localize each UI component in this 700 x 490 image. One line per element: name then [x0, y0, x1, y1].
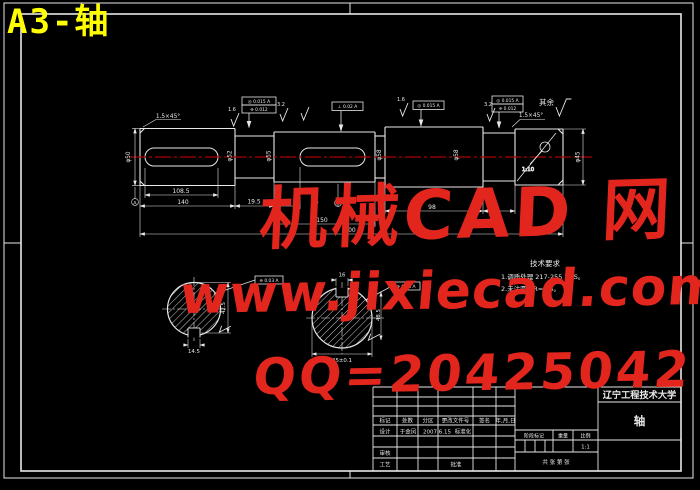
tb-stage-label: 阶段标记	[524, 433, 544, 440]
tb-header-docno: 更改文件号	[442, 417, 470, 425]
datum-a-label: A	[133, 200, 137, 206]
dim-dia1: φ50	[126, 151, 132, 163]
roughness-value-3: 1.6	[397, 97, 405, 103]
dim-key1-length: 108.5	[172, 188, 189, 195]
tb-designer-name: 于金凤	[400, 428, 417, 436]
dim-sec1-length: 140	[177, 199, 189, 206]
tb-header-sign: 签名	[479, 417, 490, 425]
fcf3-row: ◎ 0.015 A	[417, 103, 439, 109]
tb-header-date: 年,月,日	[496, 417, 516, 425]
roughness-value-2: 3.2	[277, 102, 285, 108]
chamfer-leaders	[143, 120, 545, 128]
fcf2-row: ⊥ 0.02 A	[338, 104, 357, 110]
watermark-url: www.jixiecad.com	[178, 257, 700, 327]
roughness-rest-label: 其余	[539, 97, 554, 107]
tb-design-label: 设计	[379, 428, 391, 436]
fcf4-row2: ⌯ 0.012	[499, 106, 517, 112]
tb-standard-label: 标准化	[455, 428, 472, 436]
dim-dia2: φ52	[228, 150, 234, 162]
dim-secA-width: 14.5	[188, 349, 200, 355]
watermark-brand: 机械CAD 网	[258, 153, 677, 263]
tb-process-label: 工艺	[379, 462, 391, 469]
watermark-qq: QQ=20425042	[251, 340, 694, 406]
fcf1-row2: ⌯ 0.012	[250, 107, 268, 113]
tb-header-zone: 分区	[422, 417, 434, 425]
tb-check-label: 审核	[379, 449, 391, 457]
fcf4-row1: ◎ 0.015 A	[496, 98, 518, 104]
tb-approve-label: 批准	[450, 461, 462, 469]
drawing-file-label: A3-轴	[7, 4, 110, 41]
cad-viewport: A3-轴	[0, 0, 700, 490]
dim-neck-length: 19.5	[247, 199, 261, 206]
fcf1-row1: ◎ 0.015 A	[248, 99, 270, 105]
roughness-value-1: 1.6	[228, 107, 236, 113]
tb-weight-label: 重量	[558, 433, 568, 440]
tb-header-count: 处数	[402, 417, 414, 425]
tb-scale-label: 比例	[580, 433, 590, 440]
tb-header-mark: 标记	[379, 417, 391, 425]
tb-sheet-count: 共 张 第 张	[542, 458, 570, 466]
tb-design-date: 2007.6.15	[423, 430, 451, 436]
dim-dia3: φ55	[267, 150, 273, 162]
roughness-value-4: 3.2	[484, 102, 492, 108]
dim-chamfer-left: 1.5×45°	[156, 114, 180, 120]
tb-scale-value: 1:1	[581, 445, 590, 451]
dim-chamfer-right: 1.5×45°	[519, 113, 543, 119]
tb-part-name: 轴	[634, 414, 646, 428]
dim-dia4: φ58	[377, 149, 383, 161]
